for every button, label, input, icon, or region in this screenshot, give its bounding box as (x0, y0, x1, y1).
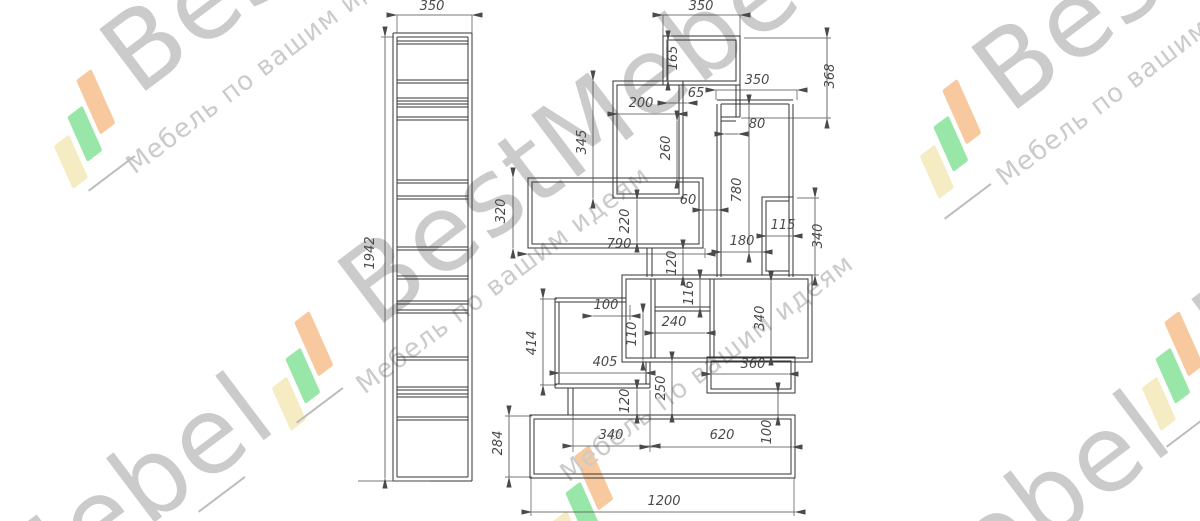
dim-label-h220: 220 (618, 209, 633, 234)
dim-label-h260: 260 (659, 136, 674, 161)
dim-label-h120u: 120 (665, 251, 680, 276)
dim-label-w200: 200 (629, 96, 654, 111)
dim-label-w790: 790 (607, 237, 632, 252)
dim-label-front_top_w: 350 (689, 0, 714, 14)
dim-label-h250: 250 (654, 376, 669, 401)
dim-label-w115: 115 (771, 218, 796, 233)
dim-label-h320: 320 (494, 199, 509, 224)
dim-label-h116: 116 (682, 281, 697, 306)
shelf-technical-drawing: 3501942350165350368652002608078034532022… (0, 0, 1200, 521)
dim-label-w100: 100 (594, 298, 619, 313)
dim-label-h368: 368 (823, 64, 838, 89)
cabinet-outline-lines (393, 33, 812, 481)
dim-label-h284: 284 (491, 431, 506, 456)
dim-label-w350: 350 (745, 73, 770, 88)
dim-label-w405: 405 (593, 355, 618, 370)
dim-label-h100: 100 (760, 420, 775, 445)
dim-label-side_w: 350 (420, 0, 445, 14)
dim-label-h340r: 340 (811, 224, 826, 249)
blueprint-canvas: BestMebel BestMebel BestMebel BestMebel … (0, 0, 1200, 521)
dim-label-h345: 345 (575, 130, 590, 155)
dim-label-h110: 110 (625, 322, 640, 347)
dimension-labels: 3501942350165350368652002608078034532022… (363, 0, 838, 509)
dim-label-side_h: 1942 (363, 236, 378, 269)
dim-label-h780: 780 (730, 178, 745, 203)
dim-label-h340: 340 (753, 306, 768, 331)
dim-label-h120l: 120 (618, 389, 633, 414)
dim-label-w180: 180 (730, 234, 755, 249)
dim-label-w65: 65 (688, 86, 705, 101)
dim-label-w60: 60 (680, 193, 697, 208)
dim-label-w340: 340 (599, 428, 624, 443)
dim-label-h165: 165 (666, 46, 681, 71)
dim-label-w240: 240 (662, 315, 687, 330)
dim-label-h414: 414 (525, 331, 540, 356)
dim-label-w620: 620 (710, 428, 735, 443)
dim-label-w360: 360 (741, 357, 766, 372)
dim-label-w80: 80 (749, 117, 766, 132)
dim-label-w1200: 1200 (647, 494, 680, 509)
